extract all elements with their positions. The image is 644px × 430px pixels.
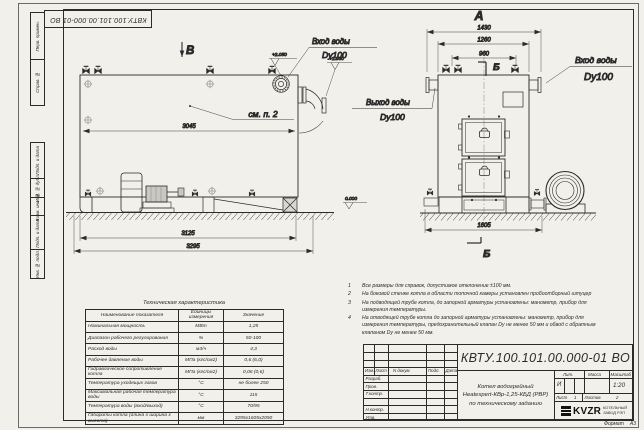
format-note: ФорматА3 xyxy=(540,421,636,427)
scale-value: 1:20 xyxy=(613,382,625,389)
doc-number: КВТУ.100.101.00.000-01 ВО xyxy=(457,345,634,370)
strip-label: Подп. и дата xyxy=(35,219,40,248)
note-number: 4 xyxy=(345,315,362,337)
notes-list: 1Все размеры для справок, допустимое отк… xyxy=(345,283,603,338)
strip-cell: Справ. № xyxy=(31,59,44,105)
sheet-value: 1 xyxy=(574,395,576,400)
gost-strip-bottom: Подп. и дата Инв. № дубл. Взам. инв. № П… xyxy=(30,142,45,279)
tech-name: Максимальная рабочая температура воды xyxy=(86,390,179,402)
tech-row: Расход водым3/ч4,3 xyxy=(86,344,284,355)
tech-value: 1,25 xyxy=(224,321,284,332)
sig-razrab: Разраб. xyxy=(366,376,382,381)
tech-name: Температура воды (вход/выход) xyxy=(86,401,179,412)
tech-row: Гидравлическое сопротивление котлаМПа (к… xyxy=(86,366,284,378)
title-block: Изм. Лист N докум. Подп. Дата Разраб. Пр… xyxy=(363,344,633,420)
company-logo-text: KVZR xyxy=(573,406,601,417)
gost-strip-top: Перв. примен. Справ. № xyxy=(30,12,45,106)
lit-value: И xyxy=(557,382,561,388)
sig-tkontr: Т.контр. xyxy=(366,391,384,396)
strip-cell: Перв. примен. xyxy=(31,13,44,59)
tech-unit: м3/ч xyxy=(179,344,224,355)
note-item: 4На отводящей трубе котла до запорной ар… xyxy=(345,315,603,337)
th-ndoc: N докум. xyxy=(393,368,411,373)
sig-utv: Утв. xyxy=(366,415,376,420)
format-value: А3 xyxy=(630,421,636,427)
product-line2: Heatexpert-КВр-1,25-КБД (РВР) xyxy=(463,391,549,400)
tech-header: Единицы измерения xyxy=(179,310,224,322)
scale-label: Масштаб xyxy=(611,372,632,377)
tech-name: Гидравлическое сопротивление котла xyxy=(86,366,179,378)
note-item: 1Все размеры для справок, допустимое отк… xyxy=(345,283,603,290)
note-number: 2 xyxy=(345,291,362,298)
tech-value: 115 xyxy=(224,390,284,402)
tech-header: Значение xyxy=(224,310,284,322)
company-cell: KVZR КОТЕЛЬНЫЙ ЗАВОД РЭП xyxy=(554,401,634,421)
sheets-label: Листов xyxy=(585,395,601,400)
note-text: На отводящей трубе котла до запорной арм… xyxy=(362,315,603,337)
tech-row: Температура воды (вход/выход)°С70/95 xyxy=(86,401,284,412)
product-line3: по техническому заданию xyxy=(469,400,542,409)
strip-label: Инв. № подл. xyxy=(35,250,40,279)
tech-value: 70/95 xyxy=(224,401,284,412)
top-doc-number-text: КВТУ.100.101.00.000-01 ВО xyxy=(50,16,147,23)
note-item: 3На подводящей трубе котла, до запорной … xyxy=(345,300,603,315)
tech-unit: МВт xyxy=(179,321,224,332)
tech-unit: МПа (кгс/см2) xyxy=(179,366,224,378)
note-number: 1 xyxy=(345,283,362,290)
tech-name: Расход воды xyxy=(86,344,179,355)
tech-row: Номинальная мощностьМВт1,25 xyxy=(86,321,284,332)
drawing-sheet: Перв. примен. Справ. № Подп. и дата Инв.… xyxy=(0,0,644,430)
format-label: Формат xyxy=(604,421,624,427)
tech-name: Габариты котла (длина х ширина х высота) xyxy=(86,413,179,425)
sheet-label: Лист xyxy=(556,395,567,400)
company-logo-icon xyxy=(561,406,571,416)
tech-value: 4,3 xyxy=(224,344,284,355)
strip-cell: Инв. № подл. xyxy=(31,249,44,278)
tech-name: Диапазон рабочего регулирования xyxy=(86,333,179,344)
strip-cell: Подп. и дата xyxy=(31,215,44,250)
tech-unit: МПа (кгс/см2) xyxy=(179,355,224,366)
note-text: Все размеры для справок, допустимое откл… xyxy=(362,283,603,290)
note-number: 3 xyxy=(345,300,362,315)
company-name: КОТЕЛЬНЫЙ ЗАВОД РЭП xyxy=(603,406,627,415)
tech-row: Максимальная рабочая температура воды°С1… xyxy=(86,390,284,402)
note-item: 2На боковой стенке котла в области топоч… xyxy=(345,291,603,298)
tech-unit: °С xyxy=(179,390,224,402)
tech-header: Наименование показателя xyxy=(86,310,179,322)
th-data: Дата xyxy=(446,368,458,373)
strip-cell: Взам. инв. № xyxy=(31,197,44,216)
sheets-value: 2 xyxy=(616,395,618,400)
lit-label: Лит. xyxy=(563,372,573,377)
strip-label: Подп. и дата xyxy=(35,146,40,175)
tech-unit: % xyxy=(179,333,224,344)
tech-row: Температура уходящих газов°Сне более 250 xyxy=(86,378,284,389)
tech-row: Рабочее давление водыМПа (кгс/см2)0,6 (6… xyxy=(86,355,284,366)
sig-nkontr: Н.контр. xyxy=(366,407,385,412)
tech-unit: °С xyxy=(179,401,224,412)
company-name-line1: КОТЕЛЬНЫЙ xyxy=(603,406,627,410)
tech-unit: мм xyxy=(179,413,224,425)
tech-header-row: Наименование показателя Единицы измерени… xyxy=(86,310,284,322)
tech-unit: °С xyxy=(179,378,224,389)
tech-table: Наименование показателя Единицы измерени… xyxy=(85,309,284,425)
tech-value: 50-100 xyxy=(224,333,284,344)
tech-table-title: Техническая характеристика xyxy=(85,300,283,306)
tech-value: 3295х1605х2050 xyxy=(224,413,284,425)
product-description: Котел водогрейный Heatexpert-КВр-1,25-КБ… xyxy=(457,370,554,421)
tech-name: Рабочее давление воды xyxy=(86,355,179,366)
strip-cell: Подп. и дата xyxy=(31,143,44,178)
strip-label: Справ. № xyxy=(35,72,40,93)
th-podp: Подп. xyxy=(428,368,440,373)
note-text: На подводящей трубе котла, до запорной а… xyxy=(362,300,603,315)
strip-label: Перв. примен. xyxy=(35,21,40,52)
tech-value: 0,06 (0,6) xyxy=(224,366,284,378)
top-doc-number-stamp: КВТУ.100.101.00.000-01 ВО xyxy=(44,10,152,28)
mass-label: Масса xyxy=(588,372,601,377)
tech-row: Габариты котла (длина х ширина х высота)… xyxy=(86,413,284,425)
th-izm: Изм. xyxy=(365,368,374,373)
th-list: Лист xyxy=(376,368,387,373)
tech-row: Диапазон рабочего регулирования%50-100 xyxy=(86,333,284,344)
sig-prov: Пров. xyxy=(366,384,378,389)
tech-name: Номинальная мощность xyxy=(86,321,179,332)
note-text: На боковой стенке котла в области топочн… xyxy=(362,291,603,298)
product-line1: Котел водогрейный xyxy=(477,383,533,392)
company-name-line2: ЗАВОД РЭП xyxy=(603,411,625,415)
tech-value: не более 250 xyxy=(224,378,284,389)
tech-name: Температура уходящих газов xyxy=(86,378,179,389)
tech-value: 0,6 (6,0) xyxy=(224,355,284,366)
